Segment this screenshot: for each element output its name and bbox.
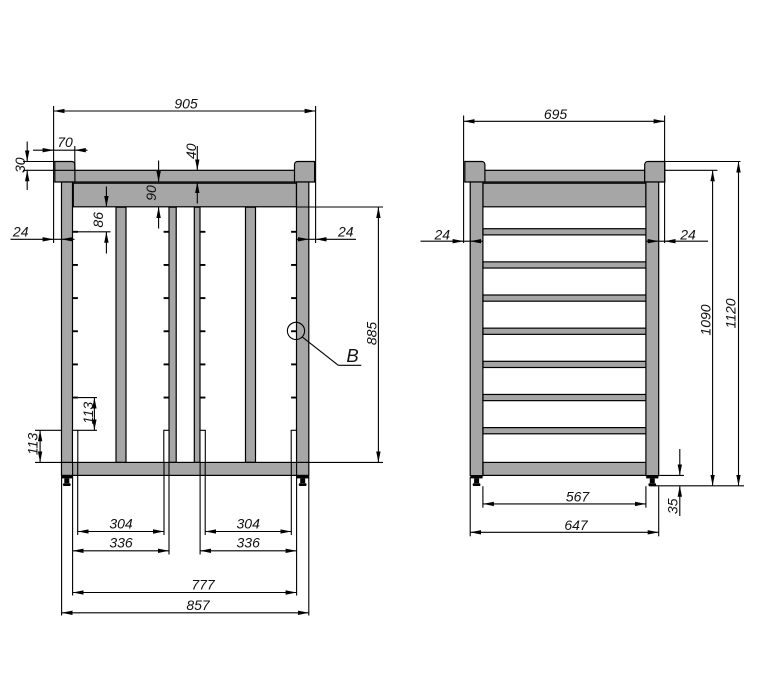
svg-text:1120: 1120 [722,298,738,328]
svg-text:70: 70 [57,134,73,150]
svg-text:567: 567 [566,489,591,505]
svg-text:304: 304 [237,515,261,531]
svg-text:647: 647 [564,517,589,533]
svg-text:35: 35 [665,498,681,514]
svg-text:24: 24 [337,224,354,240]
svg-text:336: 336 [237,535,261,551]
svg-text:113: 113 [25,433,41,456]
svg-text:905: 905 [174,96,198,112]
svg-text:86: 86 [90,212,106,228]
svg-text:336: 336 [109,535,133,551]
svg-text:304: 304 [109,515,133,531]
svg-text:90: 90 [143,185,159,201]
svg-text:113: 113 [80,402,96,425]
svg-text:777: 777 [191,577,216,593]
svg-text:24: 24 [12,224,29,240]
svg-text:1090: 1090 [698,304,714,335]
svg-text:24: 24 [434,226,451,242]
svg-text:40: 40 [183,143,199,159]
svg-text:695: 695 [544,106,568,122]
svg-text:24: 24 [679,226,696,242]
svg-text:885: 885 [364,322,380,346]
svg-text:857: 857 [186,597,211,613]
svg-text:30: 30 [12,157,28,173]
svg-text:B: B [346,345,358,366]
